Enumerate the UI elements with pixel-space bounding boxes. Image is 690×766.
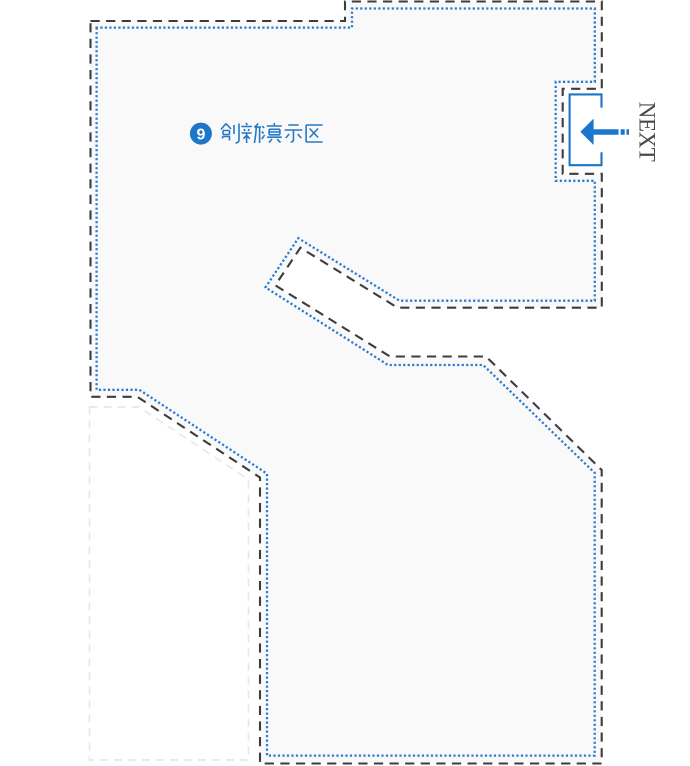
svg-text:X: X xyxy=(635,132,660,149)
svg-text:T: T xyxy=(635,148,660,162)
svg-text:9: 9 xyxy=(196,126,205,143)
svg-text:E: E xyxy=(635,118,660,132)
svg-text:N: N xyxy=(635,102,660,119)
